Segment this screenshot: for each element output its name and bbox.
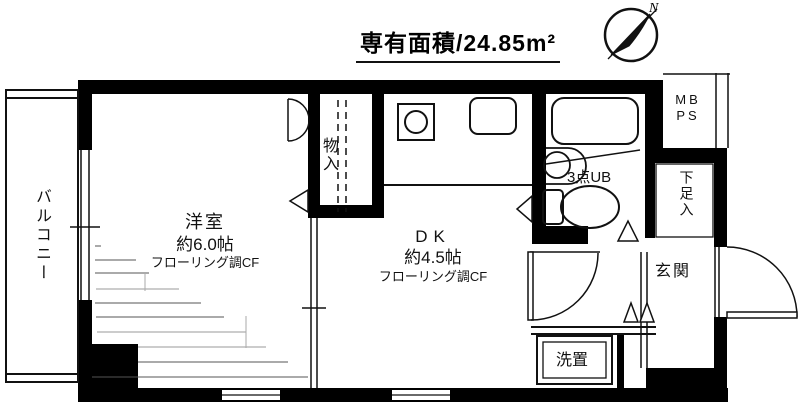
bath-floor-line — [546, 150, 640, 164]
entrance-door-icon — [715, 247, 797, 318]
closet-fold-door-icon — [290, 190, 308, 212]
wall-washer-right — [617, 334, 624, 388]
wall-mbps-bottom — [645, 148, 727, 163]
western-room-name: 洋室 — [115, 211, 295, 234]
entrance-fold-triangles-icon — [624, 303, 654, 322]
shoe-box-label: 下足入 — [677, 170, 695, 218]
dk-size: 約4.5帖 — [348, 247, 518, 268]
window-dk-bottom — [392, 390, 450, 400]
dk-label: DK 約4.5帖 フローリング調CF — [348, 226, 518, 285]
wall-closet-right — [372, 94, 384, 210]
wall-left-upper — [78, 80, 92, 150]
counter-end-triangle-icon — [517, 196, 532, 222]
wall-top — [78, 80, 663, 94]
hall-door-icon — [528, 252, 600, 320]
floorplan: 専有面積/24.85m² N — [0, 0, 800, 404]
meter-box-line2: PS — [663, 108, 713, 124]
compass-north-label: N — [649, 1, 658, 17]
unit-bath-label: 3点UB — [567, 169, 611, 188]
wall-shoebox-left — [645, 163, 655, 238]
sink-icon — [470, 98, 516, 134]
wall-right-upper — [714, 163, 727, 247]
meter-box-line1: MB — [663, 92, 713, 108]
washer-box — [531, 327, 656, 384]
closet-hanger-dashed — [338, 100, 346, 212]
western-room-size: 約6.0帖 — [115, 234, 295, 255]
stove-icon — [398, 104, 434, 140]
balcony-label: バルコニー — [31, 188, 51, 283]
bath-door-triangle-icon — [618, 221, 638, 241]
wall-corner-block-bl — [92, 344, 138, 390]
dk-name: DK — [348, 226, 518, 247]
toilet-icon — [543, 186, 619, 228]
dk-floor: フローリング調CF — [348, 269, 518, 285]
meter-box-label: MB PS — [663, 92, 713, 125]
wall-dk-bath — [532, 94, 546, 244]
closet-door-icon — [288, 99, 309, 141]
entrance-label: 玄関 — [655, 262, 691, 282]
window-western-bottom — [222, 390, 280, 400]
wall-corner-block-br — [646, 368, 727, 402]
balcony-window-icon — [70, 150, 100, 300]
wall-left-lower — [78, 300, 92, 402]
entrance-step-line — [641, 252, 647, 368]
page-title: 専有面積/24.85m² — [356, 24, 560, 63]
western-room-label: 洋室 約6.0帖 フローリング調CF — [115, 211, 295, 271]
closet-label: 物入 — [318, 137, 338, 173]
washer-label: 洗置 — [556, 351, 588, 371]
wall-bath-bottom — [532, 226, 588, 244]
bathtub-icon — [552, 98, 638, 144]
western-room-floor: フローリング調CF — [115, 255, 295, 271]
sliding-partition-icon — [302, 218, 326, 388]
